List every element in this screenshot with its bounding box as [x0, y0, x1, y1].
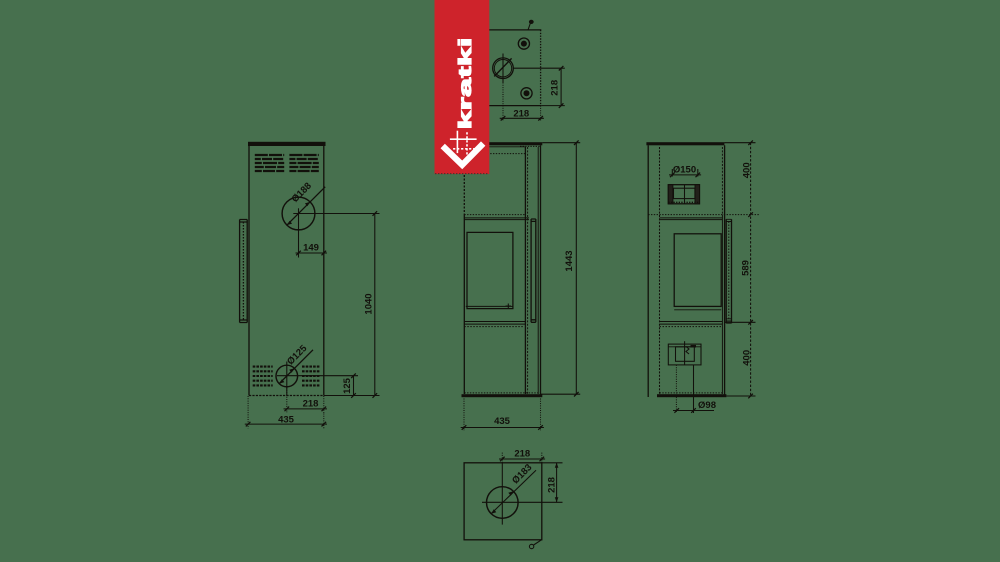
svg-text:218: 218: [550, 80, 561, 96]
svg-text:kratki: kratki: [455, 37, 475, 129]
svg-text:Ø125: Ø125: [285, 343, 310, 368]
svg-text:125: 125: [342, 377, 353, 394]
svg-text:1443: 1443: [564, 250, 575, 271]
svg-text:218: 218: [513, 108, 529, 119]
svg-text:400: 400: [741, 162, 752, 178]
svg-text:435: 435: [278, 415, 295, 426]
svg-text:435: 435: [494, 416, 511, 427]
svg-text:589: 589: [741, 260, 752, 276]
svg-text:400: 400: [742, 350, 753, 366]
svg-text:Ø150: Ø150: [673, 164, 696, 175]
svg-text:Ø183: Ø183: [510, 462, 534, 486]
svg-text:218: 218: [547, 477, 558, 493]
svg-text:Ø98: Ø98: [698, 400, 716, 411]
svg-text:218: 218: [303, 399, 319, 410]
svg-text:1040: 1040: [363, 293, 374, 314]
svg-text:149: 149: [303, 243, 319, 254]
svg-text:218: 218: [514, 449, 530, 460]
